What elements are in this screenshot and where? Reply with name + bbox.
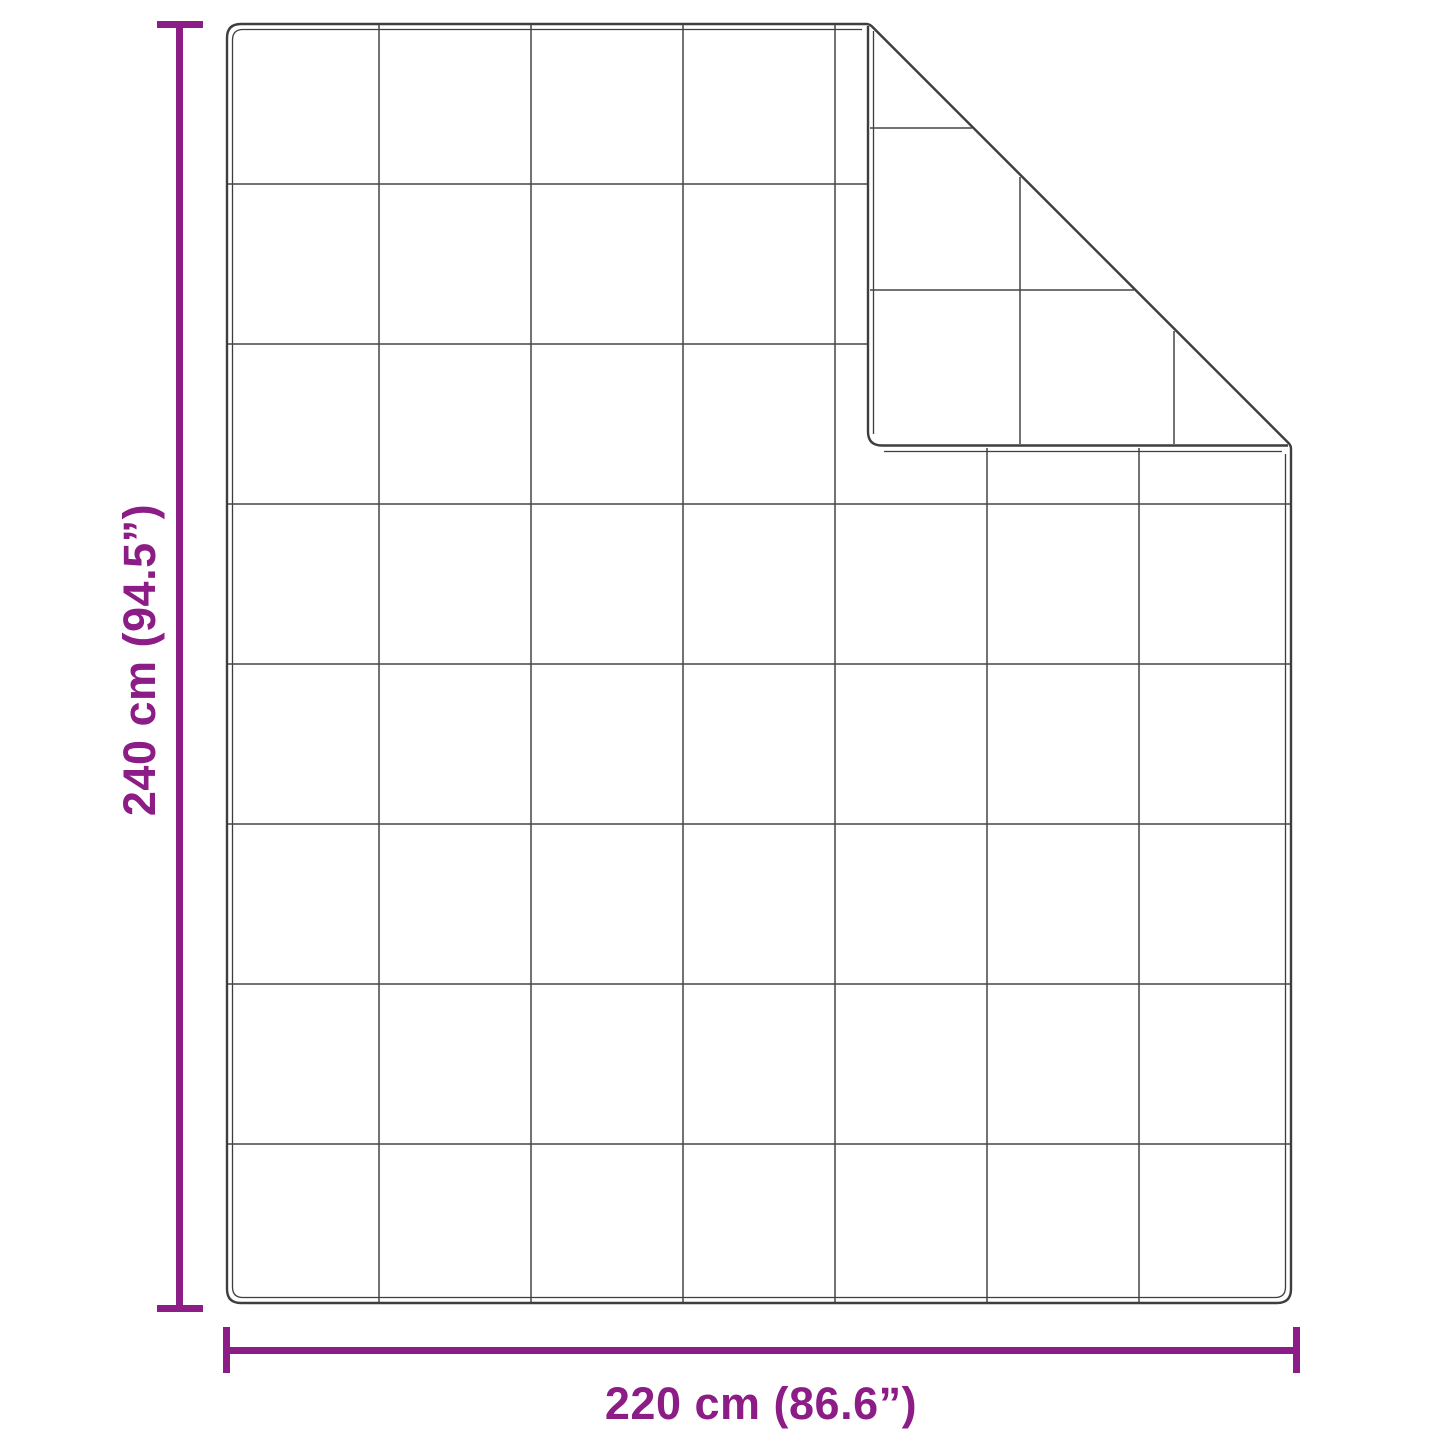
height-dimension-top-cap (157, 21, 203, 28)
width-dimension-line (223, 1347, 1300, 1354)
height-dimension-bottom-cap (157, 1305, 203, 1312)
height-dimension-label: 240 cm (94.5”) (108, 360, 172, 960)
blanket-diagram (0, 0, 1445, 1445)
diagram-canvas: 240 cm (94.5”) 220 cm (86.6”) (0, 0, 1445, 1445)
width-dimension-label: 220 cm (86.6”) (461, 1372, 1061, 1436)
width-dimension-left-cap (223, 1327, 230, 1373)
width-dimension-right-cap (1293, 1327, 1300, 1373)
height-dimension-line (176, 21, 183, 1312)
